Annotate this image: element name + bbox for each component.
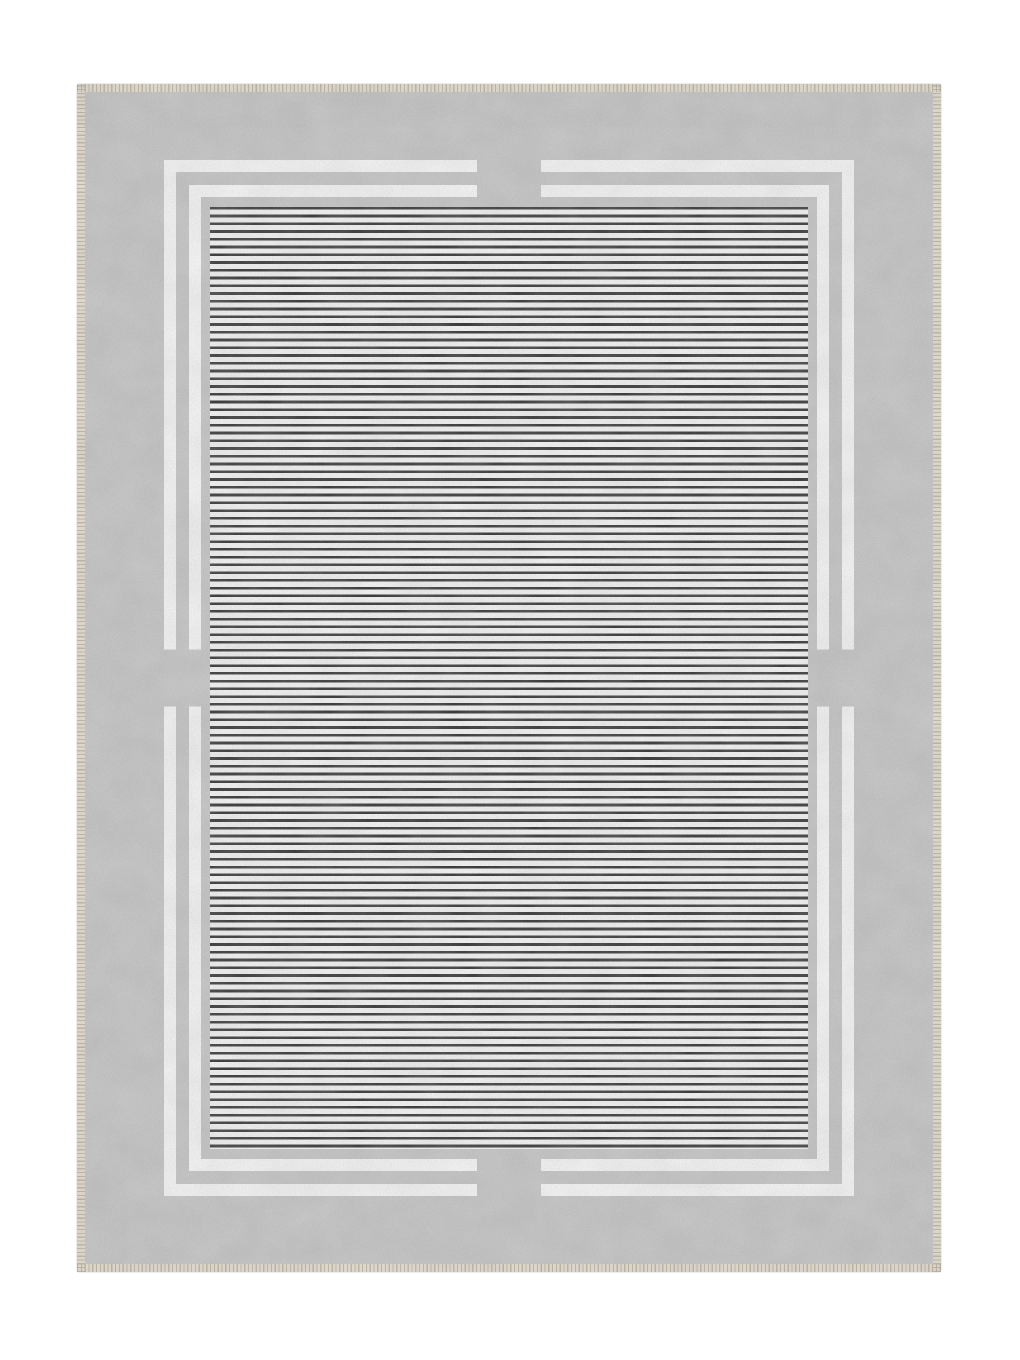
border-tab-right — [808, 650, 858, 707]
stripe-field — [210, 207, 808, 1149]
rug-fringe-top — [77, 84, 941, 92]
rug-fringe-left — [77, 84, 85, 1272]
rug — [77, 84, 941, 1272]
border-tab-bottom — [477, 1149, 541, 1200]
border-tab-top — [477, 156, 541, 207]
border-tab-left — [160, 650, 210, 707]
rug-fringe-right — [933, 84, 941, 1272]
product-photo-canvas — [0, 0, 1020, 1360]
rug-fringe-bottom — [77, 1264, 941, 1272]
